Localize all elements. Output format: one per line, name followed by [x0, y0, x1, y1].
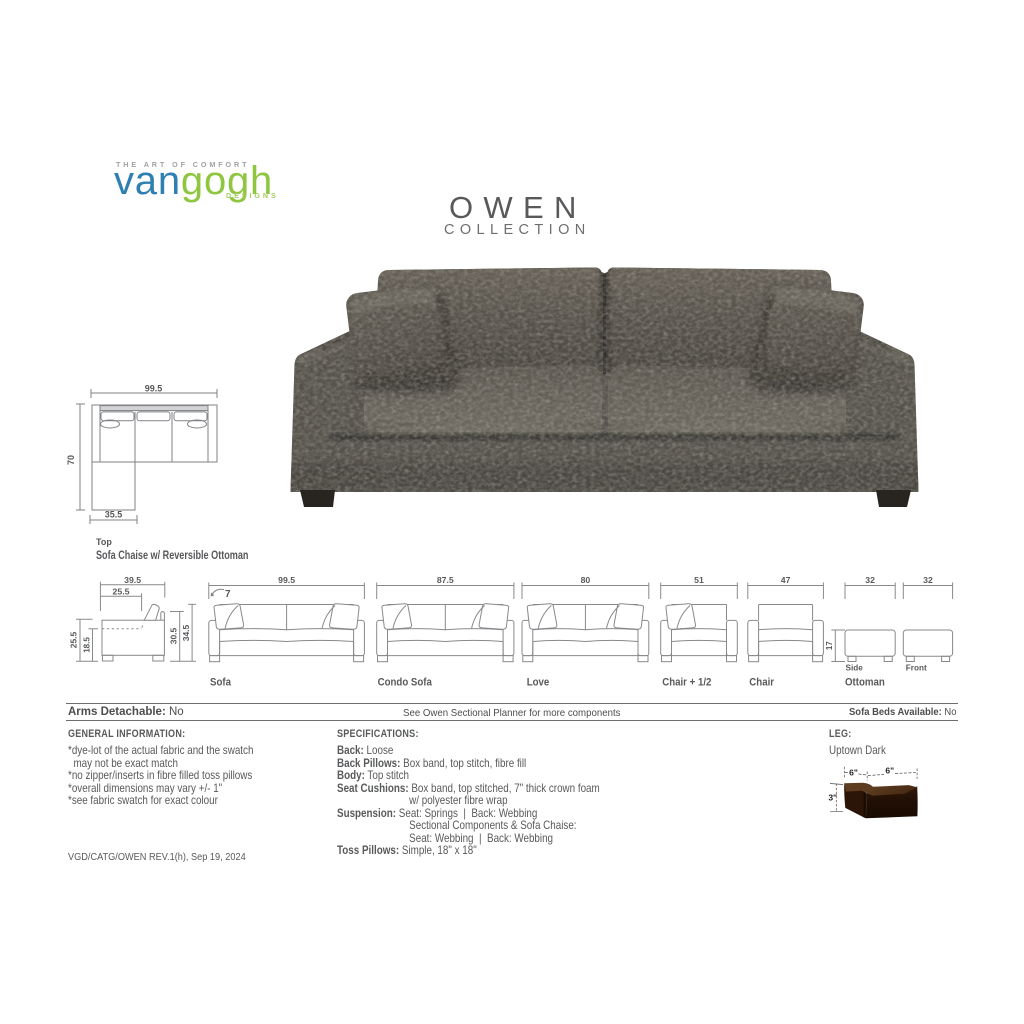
svg-text:3": 3" [828, 793, 837, 803]
svg-text:6": 6" [885, 766, 894, 776]
svg-text:6": 6" [849, 768, 858, 778]
